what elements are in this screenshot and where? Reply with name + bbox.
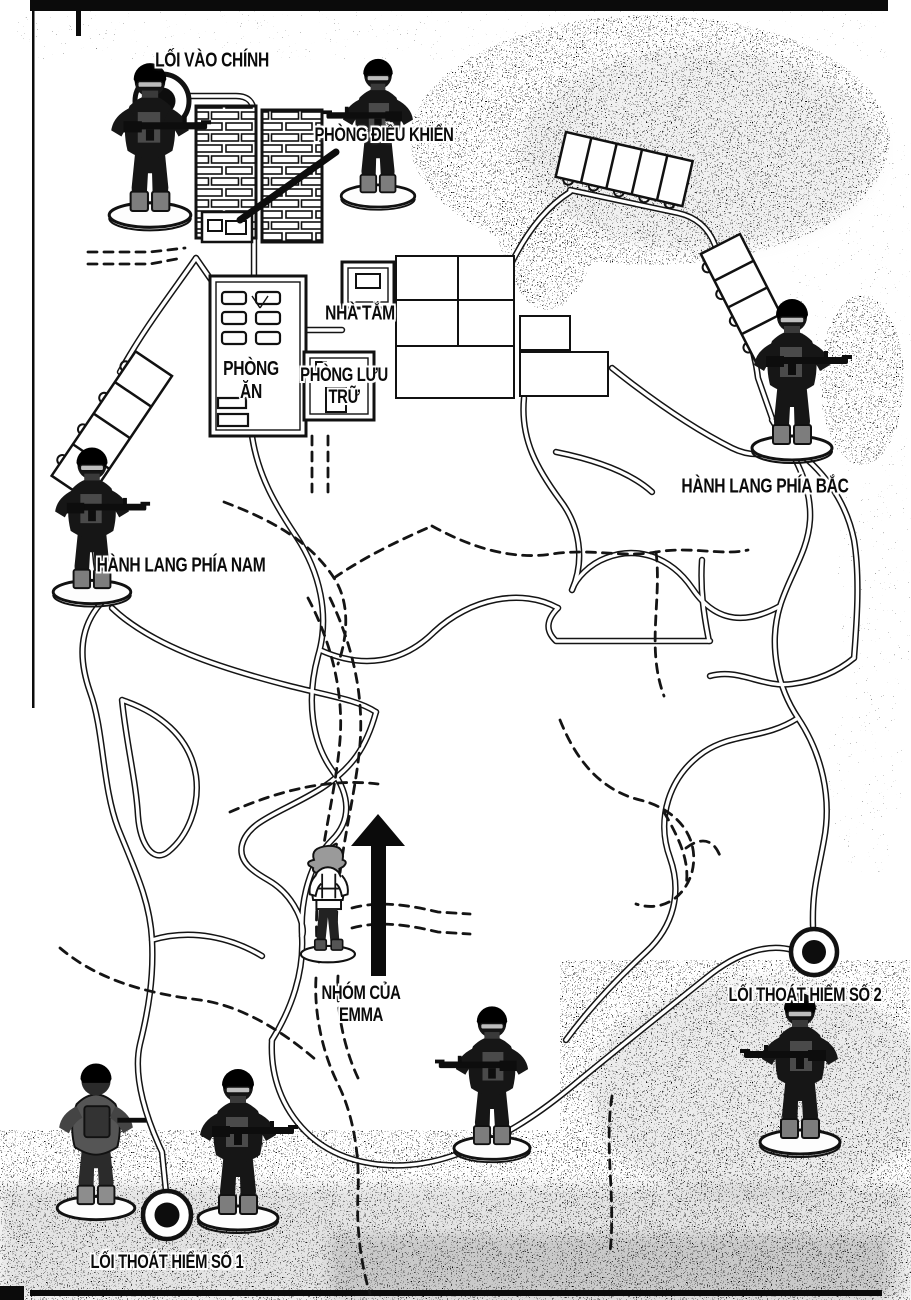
label-main-entrance: LỐI VÀO CHÍNH <box>155 50 269 73</box>
label-exit-1: LỐI THOÁT HIỂM SỐ 1 <box>91 1252 244 1274</box>
facility-map-canvas <box>0 0 911 1300</box>
label-emma-group-line2: EMMA <box>321 1005 400 1027</box>
label-storage-room-line2: TRỮ <box>300 387 388 409</box>
bathroom <box>342 262 394 308</box>
up-arrow-icon <box>351 814 405 976</box>
manga-map-page: LỐI VÀO CHÍNH PHÒNG ĐIỀU KHIỂN NHÀ TẮM P… <box>0 0 911 1300</box>
label-north-corridor: HÀNH LANG PHÍA BẮC <box>681 476 848 499</box>
label-emma-group-line1: NHÓM CỦA <box>321 983 400 1005</box>
exit-2-ring <box>791 929 837 975</box>
exit-1-ring <box>143 1191 191 1239</box>
label-dining-room-line2: ĂN <box>223 381 279 404</box>
emma-figure-icon <box>301 844 355 963</box>
south-corridor-cells <box>47 349 172 501</box>
label-bathroom: NHÀ TẮM <box>325 303 395 326</box>
label-exit-2: LỐI THOÁT HIỂM SỐ 2 <box>729 985 882 1007</box>
label-storage-room-line1: PHÒNG LƯU <box>300 365 388 387</box>
dining-room <box>210 276 306 436</box>
label-south-corridor: HÀNH LANG PHÍA NAM <box>97 555 266 578</box>
label-dining-room-line1: PHÒNG <box>223 358 279 381</box>
label-control-room: PHÒNG ĐIỀU KHIỂN <box>314 125 453 147</box>
